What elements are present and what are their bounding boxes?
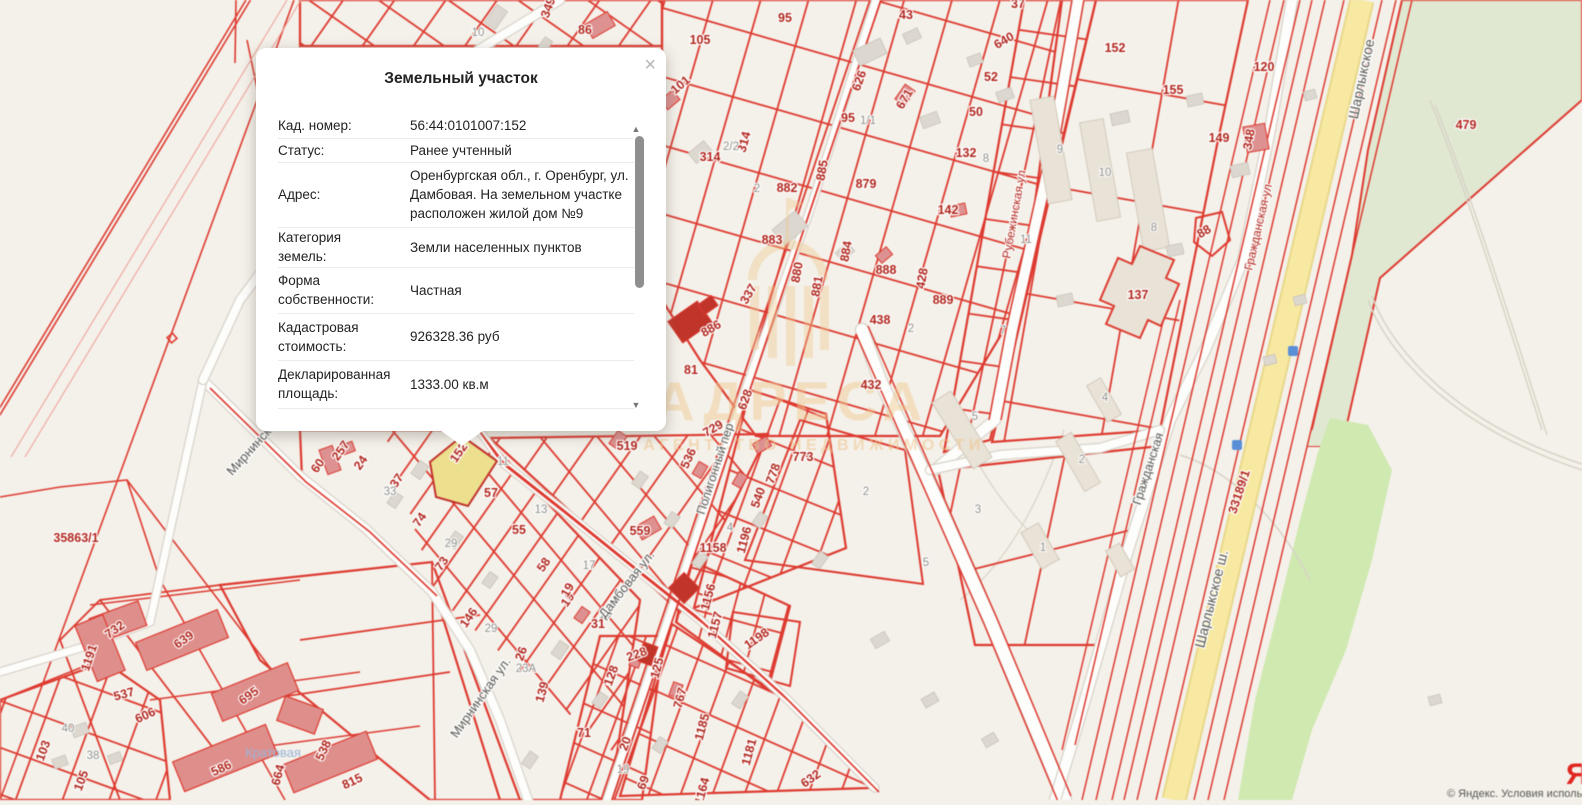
svg-text:105: 105	[690, 33, 711, 47]
svg-text:2: 2	[908, 323, 914, 335]
svg-text:95: 95	[778, 11, 792, 25]
svg-text:888: 888	[876, 263, 897, 277]
svg-text:Я: Я	[1566, 758, 1582, 791]
svg-text:5: 5	[972, 411, 978, 423]
svg-text:7: 7	[1000, 325, 1006, 337]
svg-text:882: 882	[777, 181, 798, 195]
svg-text:АДРЕСА: АДРЕСА	[655, 370, 929, 432]
svg-text:149: 149	[1209, 131, 1230, 145]
svg-text:1/1: 1/1	[860, 115, 876, 127]
svg-text:Кратовая: Кратовая	[245, 745, 301, 760]
svg-text:55: 55	[512, 523, 526, 537]
svg-text:120: 120	[1254, 60, 1275, 74]
svg-text:23А: 23А	[516, 663, 537, 675]
svg-text:438: 438	[870, 313, 891, 327]
svg-text:479: 479	[1456, 118, 1477, 132]
svg-text:© Яндекс. Условия использ: © Яндекс. Условия использ	[1447, 788, 1582, 800]
svg-text:10: 10	[472, 27, 485, 39]
svg-text:71: 71	[577, 726, 591, 740]
svg-text:13: 13	[535, 504, 548, 516]
svg-text:17: 17	[583, 560, 596, 572]
svg-text:81: 81	[684, 363, 698, 377]
svg-text:11: 11	[1020, 234, 1032, 246]
svg-text:142: 142	[938, 203, 959, 217]
svg-text:4: 4	[1102, 392, 1109, 404]
svg-text:9: 9	[1057, 144, 1063, 156]
svg-text:519: 519	[617, 439, 638, 453]
svg-text:10: 10	[1099, 167, 1112, 179]
svg-text:152: 152	[1105, 41, 1126, 55]
svg-text:5: 5	[923, 557, 929, 569]
svg-text:1: 1	[1040, 542, 1046, 554]
svg-text:8: 8	[983, 153, 989, 165]
svg-text:29: 29	[485, 623, 498, 635]
svg-text:50: 50	[969, 105, 983, 119]
svg-text:86: 86	[578, 23, 592, 37]
svg-text:883: 883	[762, 233, 783, 247]
svg-text:559: 559	[630, 524, 651, 538]
svg-text:3: 3	[975, 504, 981, 516]
svg-text:773: 773	[793, 450, 814, 464]
svg-text:155: 155	[1163, 83, 1184, 97]
svg-text:19: 19	[617, 764, 630, 776]
svg-text:29: 29	[445, 538, 458, 550]
svg-text:40: 40	[62, 723, 75, 735]
svg-text:11: 11	[497, 456, 509, 468]
svg-text:38: 38	[87, 750, 100, 762]
svg-text:137: 137	[1128, 288, 1149, 302]
svg-text:432: 432	[861, 378, 882, 392]
svg-text:2: 2	[863, 486, 869, 498]
svg-text:43: 43	[899, 8, 913, 22]
svg-text:4: 4	[727, 522, 734, 534]
svg-text:2: 2	[1079, 454, 1085, 466]
svg-text:889: 889	[933, 293, 954, 307]
svg-text:57: 57	[484, 486, 498, 500]
svg-text:314: 314	[700, 150, 721, 164]
svg-text:879: 879	[856, 177, 877, 191]
svg-text:35863/1: 35863/1	[53, 531, 98, 545]
svg-text:95: 95	[841, 111, 855, 125]
svg-text:132: 132	[956, 146, 977, 160]
svg-text:1158: 1158	[699, 541, 726, 555]
svg-text:33: 33	[384, 486, 397, 498]
svg-text:37: 37	[1011, 0, 1025, 11]
svg-text:52: 52	[984, 70, 998, 84]
svg-text:8: 8	[1151, 222, 1157, 234]
svg-text:2/2: 2/2	[723, 141, 739, 153]
svg-text:2: 2	[754, 183, 760, 195]
